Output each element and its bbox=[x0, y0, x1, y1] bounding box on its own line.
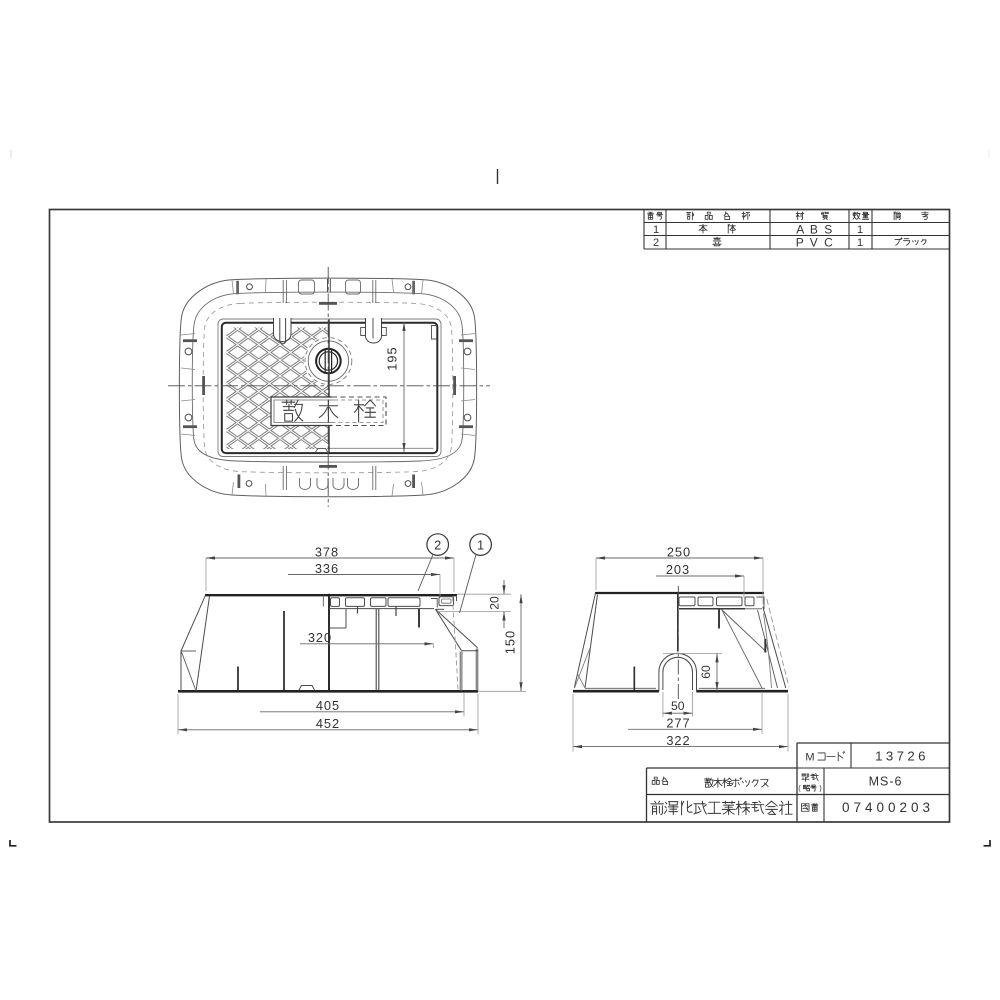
svg-text:2: 2 bbox=[653, 237, 659, 249]
svg-text:277: 277 bbox=[666, 715, 690, 730]
svg-text:60: 60 bbox=[699, 665, 713, 679]
svg-text:A B S: A B S bbox=[796, 223, 834, 237]
svg-text:1: 1 bbox=[653, 224, 659, 236]
svg-text:320: 320 bbox=[308, 630, 332, 645]
svg-text:150: 150 bbox=[503, 630, 518, 654]
svg-text:336: 336 bbox=[315, 561, 339, 576]
svg-text:50: 50 bbox=[671, 699, 685, 713]
svg-text:P V C: P V C bbox=[796, 236, 835, 250]
svg-text:452: 452 bbox=[316, 716, 340, 731]
svg-text:07400203: 07400203 bbox=[842, 800, 934, 815]
svg-text:1: 1 bbox=[477, 538, 484, 552]
svg-text:1: 1 bbox=[857, 224, 863, 236]
svg-text:322: 322 bbox=[666, 733, 690, 748]
svg-text:195: 195 bbox=[385, 346, 400, 370]
svg-text:MS-6: MS-6 bbox=[869, 775, 903, 789]
svg-text:13726: 13726 bbox=[875, 749, 929, 764]
svg-text:250: 250 bbox=[667, 544, 691, 559]
svg-text:20: 20 bbox=[488, 596, 502, 610]
svg-text:1: 1 bbox=[857, 237, 863, 249]
svg-text:M: M bbox=[805, 752, 814, 764]
svg-text:378: 378 bbox=[315, 544, 339, 559]
svg-text:203: 203 bbox=[666, 562, 690, 577]
svg-text:2: 2 bbox=[434, 538, 441, 552]
svg-text:405: 405 bbox=[316, 698, 340, 713]
